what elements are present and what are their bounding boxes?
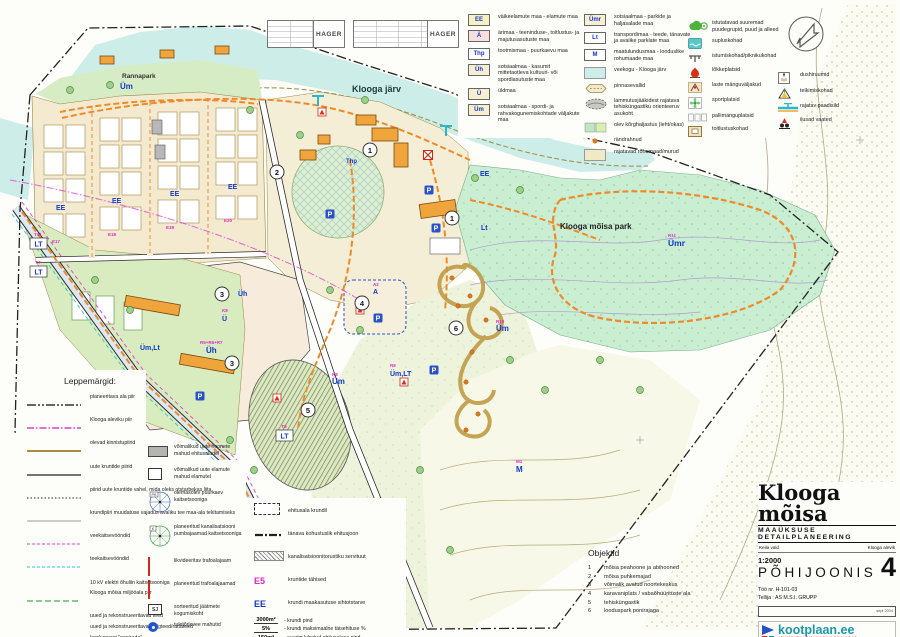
svg-text:R9: R9	[390, 363, 396, 368]
objektid-list: Objektid 1mõisa peahoone ja abihooned 2m…	[588, 548, 778, 616]
legend-row: veekogu - Klooga järv	[584, 67, 696, 79]
zone-code-ee: EE	[468, 14, 490, 26]
mound-symbol	[584, 98, 608, 110]
svg-text:Üh: Üh	[238, 289, 247, 298]
logo: kootplaan.ee ARHITEKTUURIBÜROO KOOT & KO…	[758, 621, 896, 637]
legend-row: olev kõrghaljastus (leht/okas)	[584, 122, 696, 133]
svg-text:M: M	[516, 465, 523, 474]
zone-code-thp: Thp	[468, 48, 490, 60]
legend-row: pinnasevallid	[584, 83, 696, 94]
trafo-remove-symbol	[148, 557, 150, 576]
viewpoint-icon	[778, 117, 791, 129]
legend-row: rajatav paadisild	[778, 103, 890, 113]
stamp-grid	[354, 21, 427, 47]
swimming-icon	[688, 38, 702, 49]
svg-text:Ü: Ü	[222, 314, 227, 323]
legend-row: laste mänguväljakud	[688, 82, 788, 93]
parameter-values: 3000m² 5% 150m² 2k/3h	[254, 617, 278, 637]
legend-landuse-col2: Ümrsotsiaalmaa - parkide ja haljasalade …	[584, 14, 696, 161]
legend-row: Lttranspordimaa - teede, tänavate ja ava…	[584, 32, 696, 46]
leppemargid-title: Leppemärgid:	[64, 376, 116, 386]
svg-text:PK: PK	[151, 493, 157, 497]
stamp-brand: HAGER	[427, 21, 458, 47]
zone-code-u: Ü	[468, 88, 490, 100]
plot-legend: ehitusala krundil tänava kohustuslik ehi…	[254, 502, 404, 637]
work-number: Töö nr. H-101-03	[758, 586, 896, 594]
approval-stamp: HAGER	[353, 20, 459, 48]
legend-row: SJsorteeritud jäätmete kogumiskoht	[148, 604, 244, 617]
svg-text:3: 3	[230, 359, 234, 368]
park-label: Klooga mõisa park	[560, 222, 632, 231]
rannapark-label: Rannapark	[122, 73, 156, 80]
svg-text:LT: LT	[34, 270, 43, 277]
zone-code-umr: Ümr	[584, 14, 606, 26]
svg-text:Üm: Üm	[120, 82, 133, 91]
svg-text:T8: T8	[281, 424, 287, 429]
list-item: 6looduspark ponirajaga	[588, 607, 778, 616]
svg-text:EE: EE	[480, 171, 490, 178]
svg-text:T11: T11	[34, 232, 42, 237]
svg-text:EE: EE	[228, 184, 238, 191]
svg-text:P: P	[432, 368, 437, 375]
legend-row: võimalikud uute hoonete mahud ehitusalad…	[148, 444, 244, 462]
line-symbol	[26, 425, 82, 431]
legend-row: Ühsotsiaalmaa - kasumit mittetaotleva ku…	[468, 64, 580, 84]
stamp-brand: HAGER	[313, 21, 344, 47]
legend-row: Ümrsotsiaalmaa - parkide ja haljasalade …	[584, 14, 696, 28]
svg-text:R8: R8	[332, 372, 338, 377]
legend-row: pallimänguplatsid	[688, 113, 788, 122]
svg-text:Thp: Thp	[346, 159, 357, 165]
list-item: 5tehisküngastik	[588, 599, 778, 608]
legend-row: EEkrundi maakasutuse sihtotstarve	[254, 594, 404, 612]
campfire-icon	[688, 67, 702, 78]
zone-code-uh: Üh	[468, 64, 490, 76]
legend-row: dushiruumid	[778, 72, 890, 84]
greenery-symbol	[584, 122, 608, 133]
legend-facilities-col4: dushiruumid telkimiskohad rajatav paadis…	[778, 72, 890, 129]
legend-row: planeeritud trafoalajaamad	[148, 581, 244, 599]
lake-label: Klooga järv	[352, 84, 401, 94]
legend-row: lammutusjääkidest rajatava tehisküngasti…	[584, 98, 696, 118]
building-area-symbol	[254, 503, 280, 515]
leppemargid-areas: võimalikud uute hoonete mahud ehitusalad…	[148, 444, 244, 637]
lawn-swatch	[584, 149, 606, 161]
zone-code-a: Ä	[468, 30, 490, 42]
line-symbol	[26, 598, 82, 604]
svg-text:6: 6	[454, 324, 458, 333]
svg-text:M1: M1	[516, 459, 523, 464]
legend-row: Klooga aleviku piir	[26, 417, 244, 436]
ballgame-icon	[688, 113, 708, 122]
svg-text:E20: E20	[224, 218, 233, 223]
svg-text:K8: K8	[222, 308, 228, 313]
line-symbol	[26, 472, 82, 478]
legend-row: Thptootmismaa - puurkaevu maa	[468, 48, 580, 60]
boat-pier-icon	[778, 103, 798, 113]
list-item: 2mõisa puhkemajad	[588, 573, 778, 582]
line-symbol	[26, 448, 82, 454]
sports-ground-icon	[688, 97, 702, 109]
legend-row: telkimiskohad	[778, 88, 890, 99]
playground-icon	[688, 82, 702, 93]
tent-icon	[778, 88, 791, 99]
legend-row: ilusad vaated	[778, 117, 890, 129]
svg-text:R5+R6+R7: R5+R6+R7	[200, 340, 223, 345]
legend-row: sportplatsid	[688, 97, 788, 109]
settlement: Klooga alevik	[868, 545, 895, 550]
borewell-symbol: PK	[148, 490, 172, 514]
svg-text:Ümr: Ümr	[668, 238, 686, 248]
svg-text:1: 1	[450, 214, 454, 223]
legend-row: supluskohad	[688, 38, 788, 49]
svg-text:P: P	[434, 226, 439, 233]
legend-row: istutatavad suuremad puudegrupid, puud j…	[688, 20, 788, 34]
legend-row: rändrahnud	[584, 137, 696, 145]
svg-text:EE: EE	[56, 205, 66, 212]
project-title: Klooga mõisa	[758, 482, 896, 524]
pump-station-symbol: K	[148, 524, 172, 548]
legend-row: istumiskohad/piknikukohad	[688, 53, 788, 63]
svg-text:LT: LT	[280, 434, 289, 441]
list-item: 3võimalik avatud noortekeskus	[588, 581, 778, 590]
shower-icon	[778, 72, 790, 84]
line-symbol	[26, 564, 82, 570]
legend-row: Mmaatulundusmaa - looduslike rohumaade m…	[584, 49, 696, 63]
fire-water-symbol	[148, 622, 158, 632]
legend-row: Äärimaa - teeninduse-, toitlustus- ja ma…	[468, 30, 580, 44]
svg-text:5: 5	[306, 406, 310, 415]
svg-text:P: P	[376, 316, 381, 323]
logo-mark-icon	[761, 624, 775, 637]
svg-text:A2: A2	[373, 282, 379, 287]
landuse-code-symbol: EE	[254, 599, 266, 609]
svg-text:3: 3	[220, 290, 224, 299]
svg-text:Üh: Üh	[206, 346, 217, 355]
approval-stamp: HAGER	[267, 20, 345, 48]
legend-row: tänava kohustuslik ehitusjoon	[254, 525, 404, 543]
svg-text:E19: E19	[166, 225, 175, 230]
legend-row: Üüldmaa	[468, 88, 580, 100]
svg-text:P: P	[328, 212, 333, 219]
svg-text:E18: E18	[108, 232, 117, 237]
zone-code-m: M	[584, 49, 606, 61]
legend-row: likvideeritav trafoalajaam	[148, 558, 244, 576]
drawing-name: PÕHIJOONIS	[758, 565, 876, 580]
picnic-bench-icon	[688, 53, 702, 63]
legend-row: planeeritava ala piir	[26, 394, 244, 413]
svg-text:Üm: Üm	[332, 377, 345, 386]
svg-text:LT: LT	[34, 242, 43, 249]
berm-symbol	[584, 83, 608, 94]
legend-row: võimalikud uute elamute mahud elamutel	[148, 467, 244, 485]
water-swatch	[584, 67, 606, 79]
boulder-symbol	[584, 137, 608, 145]
parameter-labels: - krundi pind - krundi maksimaalne täise…	[284, 617, 404, 637]
tree-group-icon	[688, 20, 708, 33]
north-arrow-icon	[789, 17, 823, 51]
legend-row: lõkkeplatsid	[688, 67, 788, 78]
legend-landuse-col1: EEväikeelamute maa - elamute maa Äärimaa…	[468, 14, 580, 124]
legend-row: toitlustuskohad	[688, 126, 788, 137]
plot-parameters: 3000m² 5% 150m² 2k/3h - krundi pind - kr…	[254, 617, 404, 637]
plot-id-symbol: E5	[254, 576, 265, 586]
project-subtitle: MAAÜKSUSE DETAILPLANEERING	[758, 525, 896, 543]
zone-code-um: Üm	[468, 104, 490, 116]
catering-icon	[688, 126, 702, 137]
svg-text:R11: R11	[668, 233, 677, 238]
legend-row: tuletõrjevee mahutid	[148, 622, 244, 632]
trafo-new-symbol	[148, 580, 150, 599]
scale: 1:2000	[758, 556, 876, 565]
line-symbol	[26, 402, 82, 408]
svg-text:P: P	[427, 188, 432, 195]
date-box: sept 2004	[758, 606, 896, 617]
svg-text:T7: T7	[35, 260, 41, 265]
svg-text:Üm,Lt: Üm,Lt	[140, 343, 161, 352]
logo-text: kootplaan.ee	[778, 624, 857, 637]
building-line-symbol	[254, 532, 282, 538]
svg-text:Lt: Lt	[481, 225, 488, 232]
svg-text:A: A	[373, 289, 378, 296]
legend-row: Kplaneeritud kanalisatsiooni pumbajaamad…	[148, 524, 244, 553]
legend-row: rajatavad rohumaad/murud	[584, 149, 696, 161]
municipality: Keila vald	[759, 545, 779, 550]
new-building-swatch	[148, 446, 168, 457]
sheet-number: 4	[881, 556, 896, 579]
list-item: 4karavaniplats / vabaõhuürituste ala	[588, 590, 778, 599]
legend-facilities-col: istutatavad suuremad puudegrupid, puud j…	[688, 20, 788, 137]
waste-point-symbol: SJ	[148, 604, 162, 615]
svg-text:Üm: Üm	[496, 324, 509, 333]
svg-text:R10: R10	[496, 319, 505, 324]
svg-text:1: 1	[368, 146, 372, 155]
legend-row: EEväikeelamute maa - elamute maa	[468, 14, 580, 26]
title-block: Klooga mõisa MAAÜKSUSE DETAILPLANEERING …	[758, 482, 896, 637]
plan-sheet: LT T11 LT T7 LT T8 P P P P P P 1 1 2 3 3…	[0, 0, 900, 637]
legend-row: kanalisatsioonitorustiku servituut	[254, 548, 404, 566]
legend-row: Ümsotsiaalmaa - spordi- ja rahvakogunemi…	[468, 104, 580, 124]
line-symbol	[26, 518, 82, 524]
list-item: 1mõisa peahoone ja abihooned	[588, 564, 778, 573]
svg-text:K: K	[152, 527, 155, 531]
svg-text:EE: EE	[170, 191, 180, 198]
line-symbol	[26, 495, 82, 501]
stamp-grid	[268, 21, 313, 47]
client: Tellija : AS M.S.I. GRUPP	[758, 594, 896, 602]
svg-text:Üm,LT: Üm,LT	[390, 369, 412, 378]
legend-row: E5kruntide tähised	[254, 571, 404, 589]
new-dwelling-swatch	[148, 468, 162, 480]
legend-row: ehitusala krundil	[254, 502, 404, 520]
objektid-title: Objektid	[588, 548, 778, 558]
svg-text:EE: EE	[112, 198, 122, 205]
svg-text:E17: E17	[52, 239, 61, 244]
zone-code-lt: Lt	[584, 32, 606, 44]
trafo-remove-icon	[424, 151, 433, 160]
svg-text:2: 2	[275, 168, 279, 177]
legend-row: PKolemasolev puurkaev kaitsetsooniga	[148, 490, 244, 519]
line-symbol	[26, 541, 82, 547]
sewer-servitude-symbol	[254, 551, 284, 561]
